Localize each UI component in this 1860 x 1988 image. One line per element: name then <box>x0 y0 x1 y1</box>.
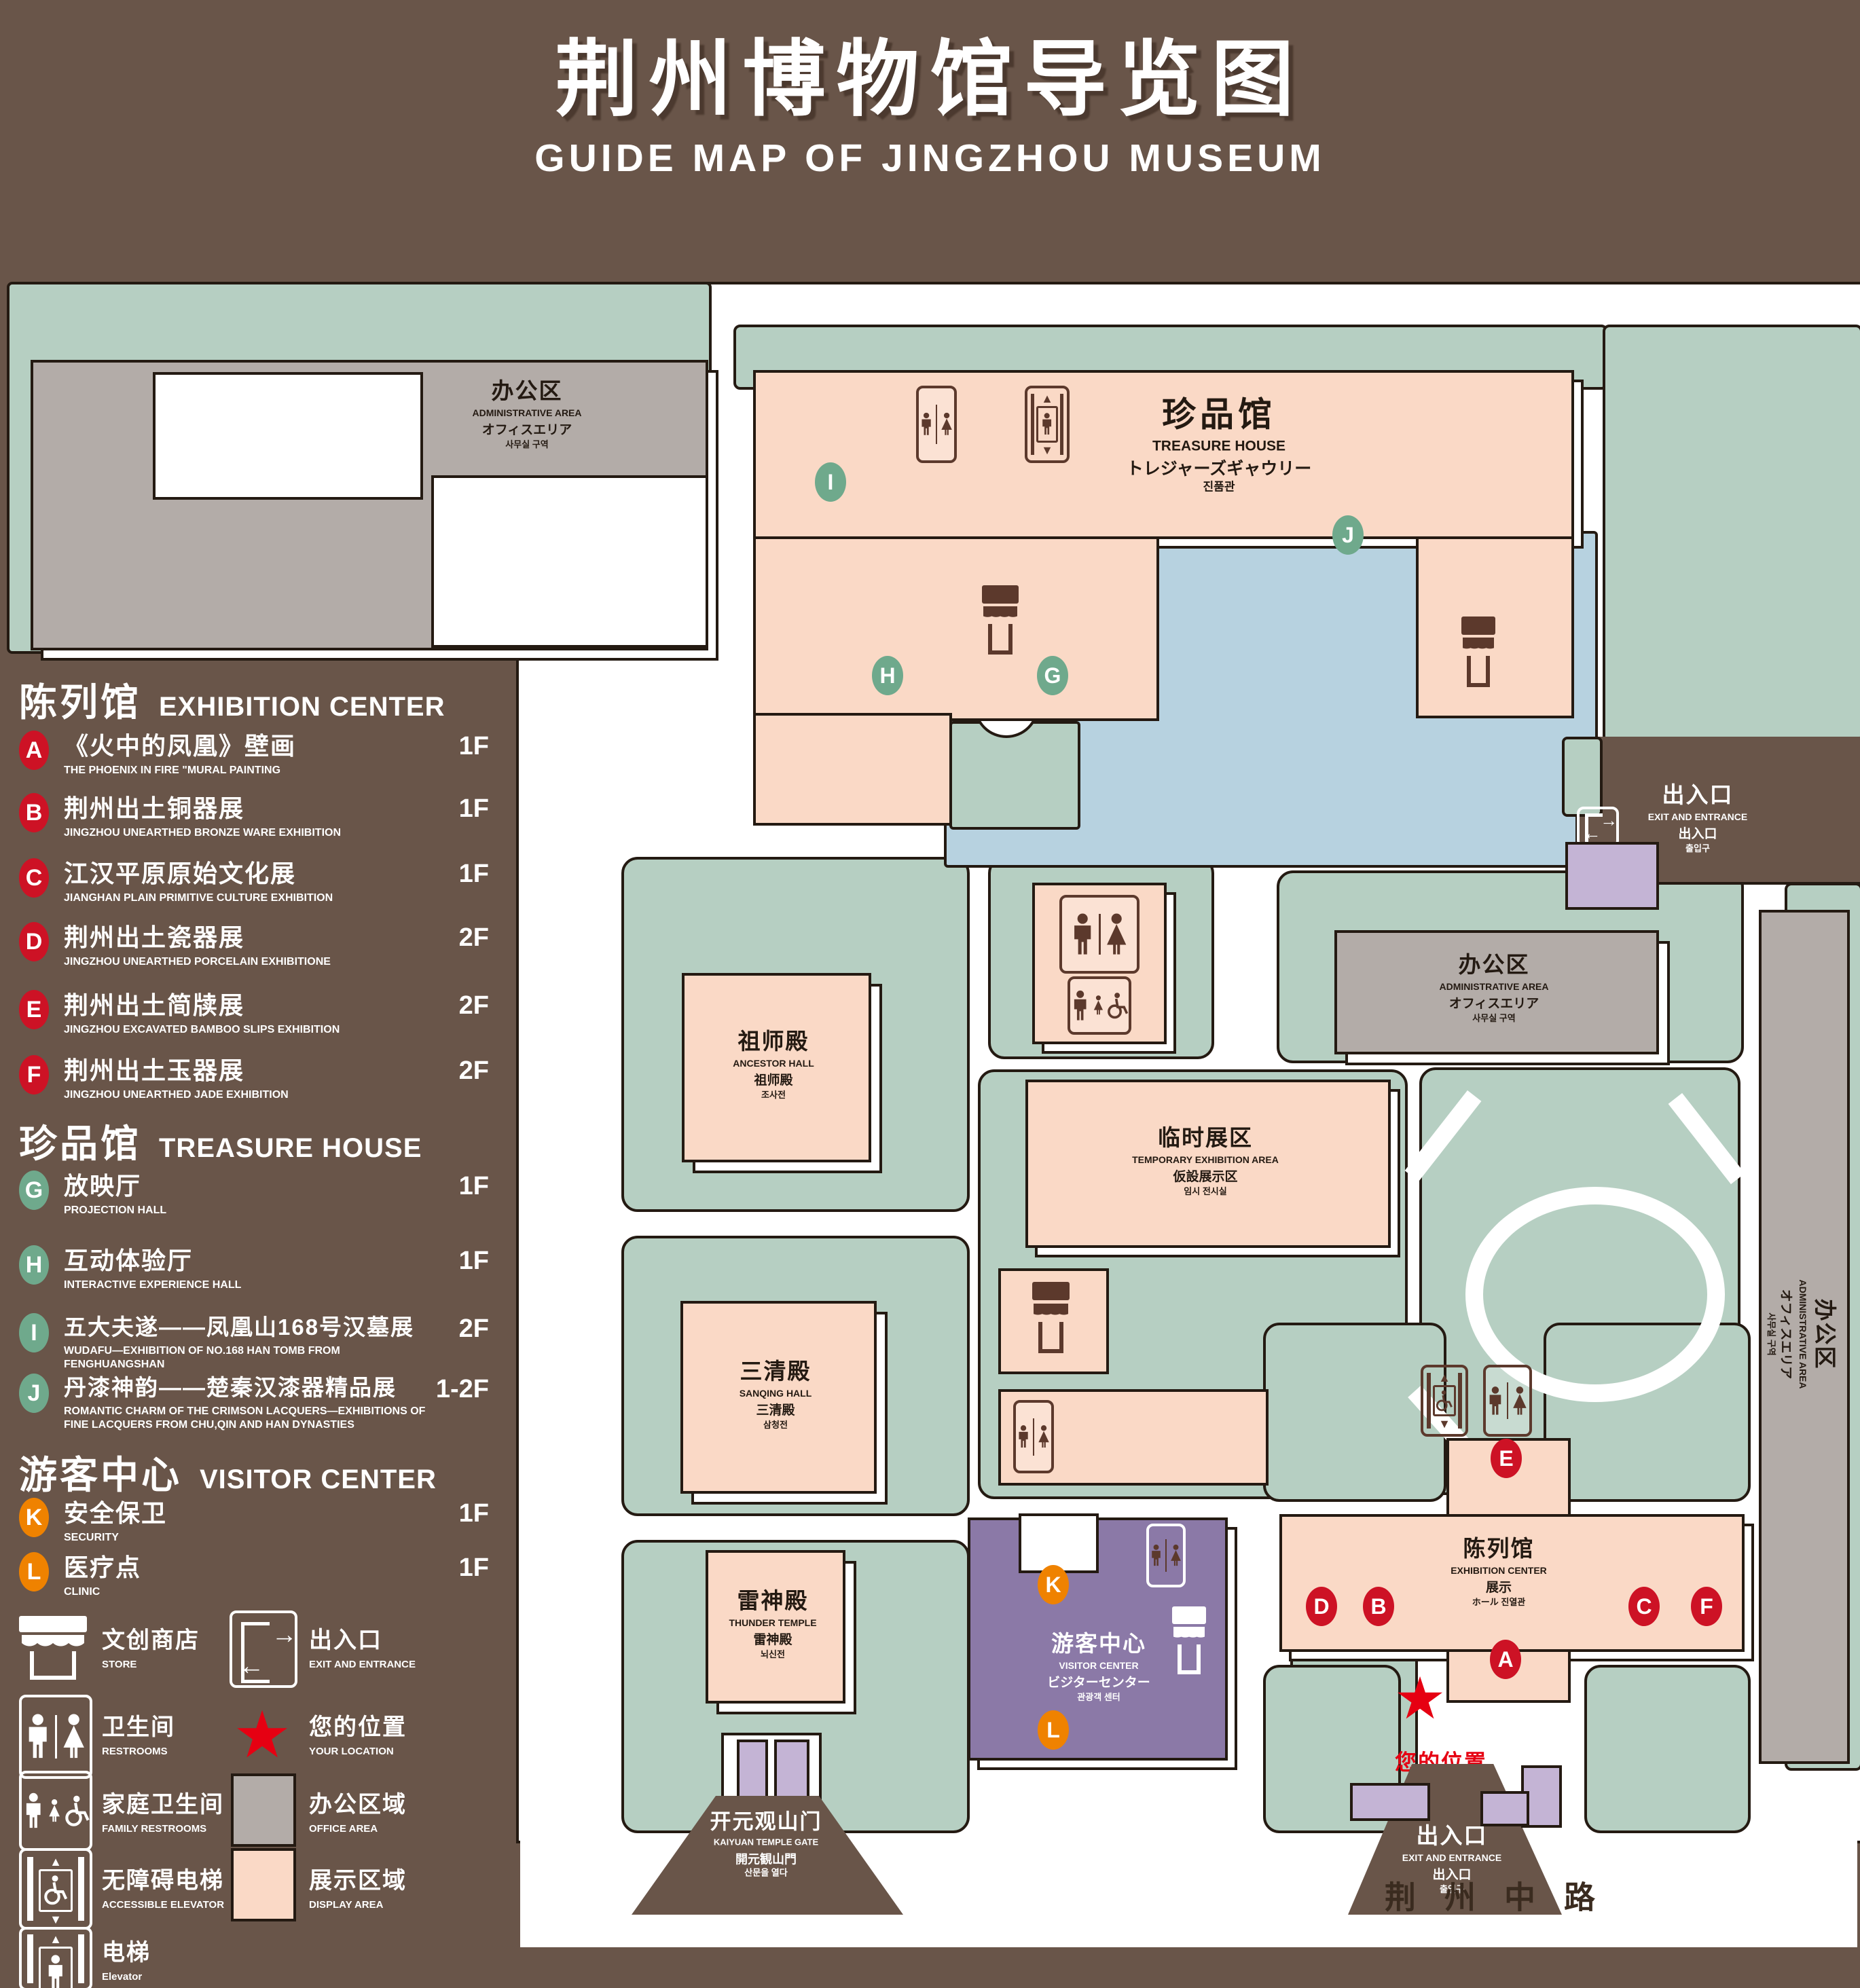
store-icon <box>982 585 1019 655</box>
legend-item-G: G 放映厅 PROJECTION HALL 1F <box>19 1172 489 1217</box>
lawn <box>1584 1665 1751 1833</box>
legend-item-A: A 《火中的凤凰》壁画 THE PHOENIX IN FIRE "MURAL P… <box>19 732 489 777</box>
store-icon <box>1172 1606 1206 1674</box>
courtyard <box>1019 1513 1099 1573</box>
page-subtitle: GUIDE MAP OF JINGZHOU MUSEUM <box>0 136 1860 181</box>
restrooms-icon <box>1146 1524 1186 1587</box>
label-treasure-house: 珍品馆 TREASURE HOUSE トレジャーズギャウリー 진품관 <box>1127 396 1312 494</box>
exit-icon: →← <box>1577 807 1619 847</box>
restrooms-icon <box>1013 1400 1054 1473</box>
legend-symbol-your-location: 您的位置 YOUR LOCATION <box>309 1708 407 1757</box>
legend-item-D: D 荆州出土瓷器展 JINGZHOU UNEARTHED PORCELAIN E… <box>19 923 489 969</box>
courtyard <box>431 475 708 648</box>
marker-B: B <box>1363 1587 1394 1626</box>
legend-symbol-family-restrooms: 家庭卫生间 FAMILY RESTROOMS <box>102 1786 224 1835</box>
display-area-swatch <box>231 1848 296 1921</box>
legend-symbol-display-area: 展示区域 DISPLAY AREA <box>309 1862 407 1911</box>
legend-symbol-store: 文创商店 STORE <box>102 1621 200 1670</box>
marker-F: F <box>1691 1587 1722 1626</box>
gate-pillar <box>737 1739 768 1805</box>
location-star-icon: ★ <box>1393 1670 1446 1728</box>
restrooms-icon <box>19 1695 92 1779</box>
marker-L: L <box>1038 1710 1069 1750</box>
restrooms-icon <box>916 386 957 463</box>
legend-item-I: I 五大夫遂——凤凰山168号汉墓展 WUDAFU—EXHIBITION OF … <box>19 1314 489 1372</box>
label-exhibition-center: 陈列馆 EXHIBITION CENTER 展示 ホール 진열관 <box>1451 1536 1547 1608</box>
label-temporary-exhibition: 临时展区 TEMPORARY EXHIBITION AREA 仮設展示区 임시 … <box>1132 1125 1279 1197</box>
legend-item-J: J 丹漆神韵——楚秦汉漆器精品展 ROMANTIC CHARM OF THE C… <box>19 1375 489 1432</box>
restrooms-icon <box>1483 1365 1532 1437</box>
marker-D: D <box>1306 1587 1337 1626</box>
building-treasure-house <box>753 713 952 826</box>
marker-G: G <box>1037 656 1068 695</box>
legend-symbol-office-area: 办公区域 OFFICE AREA <box>309 1786 407 1835</box>
label-admin-northwest: 办公区 ADMINISTRATIVE AREA オフィスエリア 사무실 구역 <box>473 378 582 450</box>
lawn <box>1603 325 1860 743</box>
label-visitor-center: 游客中心 VISITOR CENTER ビジターセンター 관광객 센터 <box>1047 1631 1150 1703</box>
label-thunder-temple: 雷神殿 THUNDER TEMPLE 雷神殿 뇌신전 <box>729 1588 816 1660</box>
courtyard <box>153 372 423 500</box>
exit-icon: →← <box>230 1610 297 1688</box>
legend-item-F: F 荆州出土玉器展 JINGZHOU UNEARTHED JADE EXHIBI… <box>19 1056 489 1102</box>
label-admin-east: 办公区 ADMINISTRATIVE AREA オフィスエリア 사무실 구역 <box>1766 1280 1838 1389</box>
label-kaiyuan-gate: 开元观山门 KAIYUAN TEMPLE GATE 開元観山門 산문을 열다 <box>710 1809 822 1878</box>
legend-section-exhibition-center: 陈列馆 EXHIBITION CENTER <box>19 672 445 727</box>
road-name: 荆州中路 <box>1385 1880 1624 1916</box>
location-star-icon: ★ <box>233 1703 291 1768</box>
label-ancestor-hall: 祖师殿 ANCESTOR HALL 祖师殿 조사전 <box>733 1029 814 1101</box>
guide-map-poster: 荆州博物馆导览图 GUIDE MAP OF JINGZHOU MUSEUM 办公… <box>0 0 1860 1988</box>
marker-E: E <box>1491 1439 1522 1478</box>
accessible-elevator-icon: ▲▼ <box>1421 1365 1468 1437</box>
restrooms-icon <box>1059 895 1139 974</box>
legend-item-H: H 互动体验厅 INTERACTIVE EXPERIENCE HALL 1F <box>19 1247 489 1292</box>
gate-pillar <box>774 1739 809 1805</box>
elevator-icon: ▲▼ <box>19 1927 92 1988</box>
label-sanqing-hall: 三清殿 SANQING HALL 三清殿 삼청전 <box>740 1359 812 1431</box>
accessible-elevator-icon: ▲▼ <box>19 1848 92 1930</box>
store-icon <box>1032 1282 1070 1353</box>
label-admin-central: 办公区 ADMINISTRATIVE AREA オフィスエリア 사무실 구역 <box>1440 952 1549 1024</box>
legend-symbol-accessible-elevator: 无障碍电梯 ACCESSIBLE ELEVATOR <box>102 1862 224 1911</box>
legend-symbol-elevator: 电梯 Elevator <box>102 1934 151 1983</box>
marker-H: H <box>872 656 903 695</box>
marker-A: A <box>1490 1640 1521 1679</box>
legend-item-C: C 江汉平原原始文化展 JIANGHAN PLAIN PRIMITIVE CUL… <box>19 860 489 905</box>
lawn <box>1263 1323 1446 1502</box>
legend-item-L: L 医疗点 CLINIC 1F <box>19 1553 489 1599</box>
legend-section-visitor-center: 游客中心 VISITOR CENTER <box>19 1445 437 1500</box>
building-small-purple <box>1565 842 1659 910</box>
marker-J: J <box>1332 515 1364 555</box>
family-restrooms-icon <box>1068 976 1131 1035</box>
legend-item-B: B 荆州出土铜器展 JINGZHOU UNEARTHED BRONZE WARE… <box>19 794 489 840</box>
building-small-purple <box>1480 1791 1529 1826</box>
building-small-purple <box>1350 1783 1430 1821</box>
family-restrooms-icon <box>19 1771 92 1851</box>
lawn <box>1562 737 1603 817</box>
legend-item-K: K 安全保卫 SECURITY 1F <box>19 1499 489 1545</box>
page-title: 荆州博物馆导览图 <box>0 12 1860 132</box>
store-icon <box>19 1616 87 1680</box>
legend-section-treasure-house: 珍品馆 TREASURE HOUSE <box>19 1113 422 1168</box>
marker-I: I <box>815 462 846 502</box>
store-icon <box>1461 616 1495 687</box>
label-exit-north: 出入口 EXIT AND ENTRANCE 出入口 출입구 <box>1648 782 1748 854</box>
building-treasure-house <box>753 531 1159 721</box>
marker-C: C <box>1628 1587 1660 1626</box>
legend-symbol-restrooms: 卫生间 RESTROOMS <box>102 1708 175 1757</box>
elevator-icon: ▲▼ <box>1025 386 1070 463</box>
marker-K: K <box>1038 1565 1069 1604</box>
legend-item-E: E 荆州出土简牍展 JINGZHOU EXCAVATED BAMBOO SLIP… <box>19 991 489 1037</box>
office-area-swatch <box>231 1773 296 1847</box>
legend-symbol-exit: 出入口 EXIT AND ENTRANCE <box>309 1621 416 1670</box>
lawn-island <box>949 721 1080 830</box>
